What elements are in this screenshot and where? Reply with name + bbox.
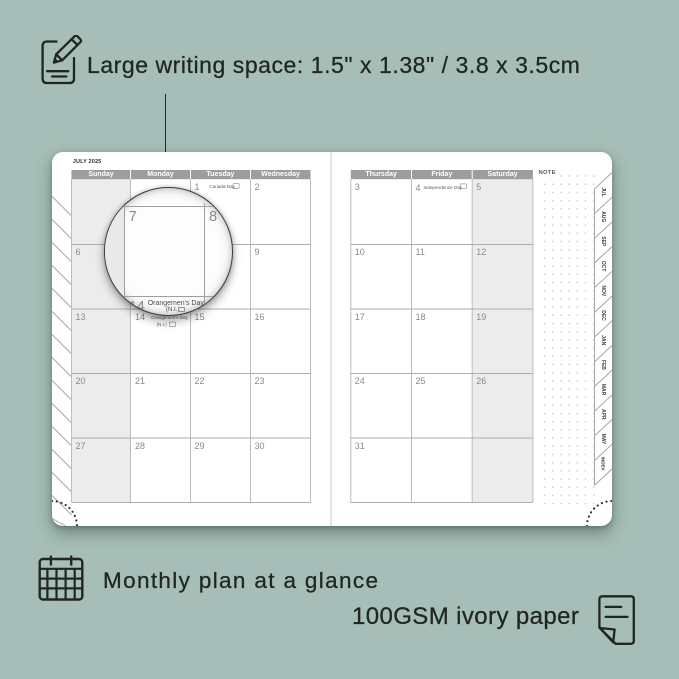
svg-text:NOV: NOV: [600, 285, 606, 297]
svg-text:INDEX: INDEX: [601, 457, 606, 472]
svg-text:FEB: FEB: [600, 360, 606, 370]
svg-text:AUG: AUG: [600, 211, 606, 222]
svg-text:JAN: JAN: [600, 335, 606, 345]
svg-text:SEP: SEP: [600, 236, 606, 247]
svg-text:MAY: MAY: [600, 434, 606, 445]
svg-text:OCT: OCT: [600, 261, 606, 272]
svg-text:APR: APR: [600, 409, 606, 420]
svg-text:JUL: JUL: [600, 187, 606, 196]
svg-text:MAR: MAR: [600, 384, 606, 396]
svg-text:DEC: DEC: [600, 310, 606, 321]
